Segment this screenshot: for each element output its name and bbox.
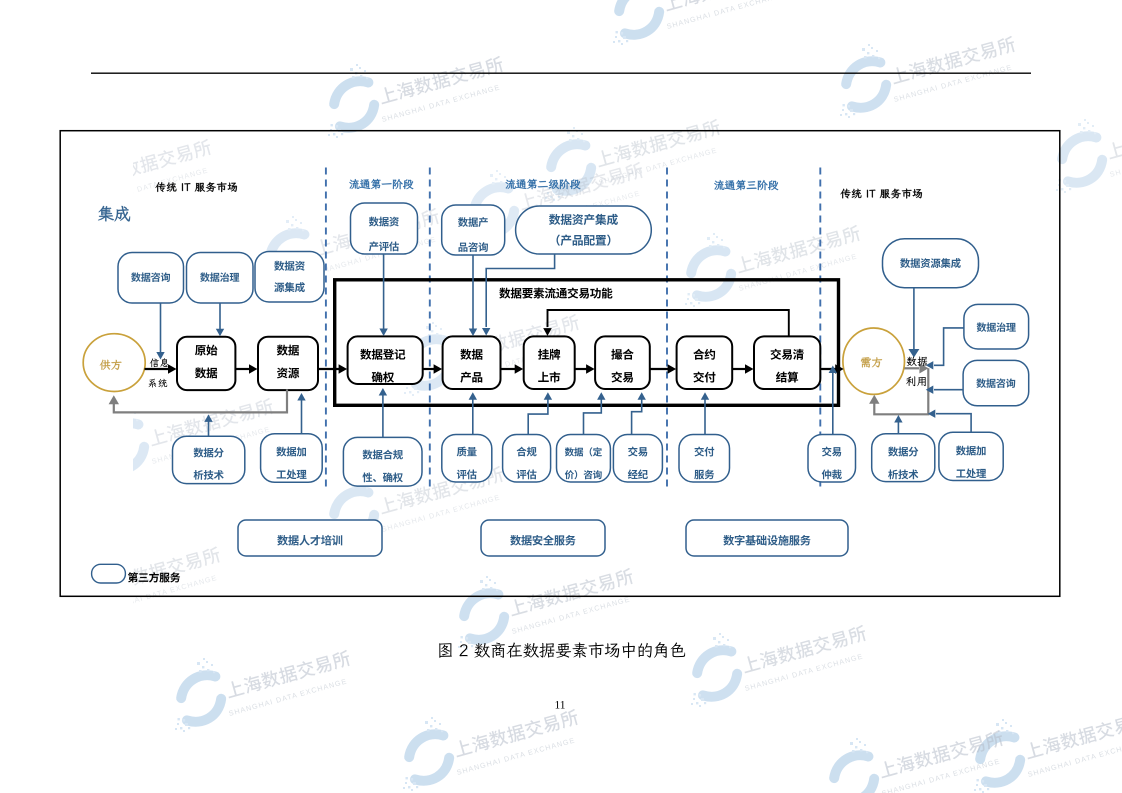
svg-text:11: 11 [554, 700, 565, 712]
